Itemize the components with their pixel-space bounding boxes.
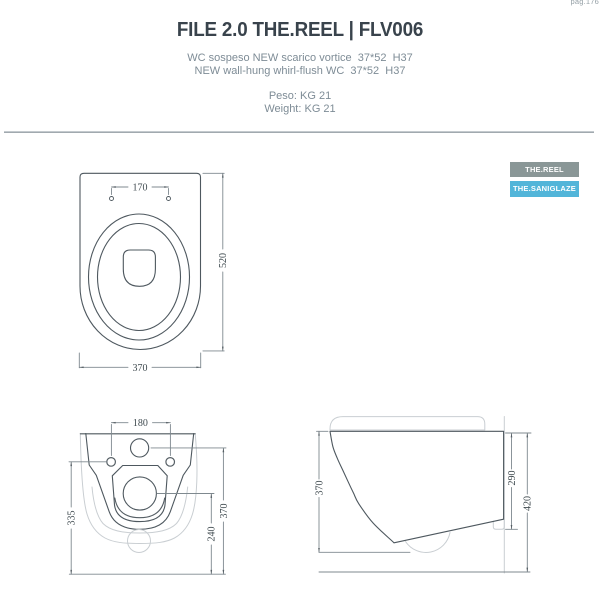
svg-text:180: 180 (133, 418, 148, 429)
svg-text:335: 335 (67, 511, 78, 526)
svg-text:370: 370 (219, 504, 230, 519)
svg-text:370: 370 (314, 481, 325, 496)
svg-text:290: 290 (507, 471, 518, 486)
svg-text:370: 370 (133, 363, 148, 374)
svg-text:420: 420 (523, 496, 534, 511)
svg-text:520: 520 (218, 253, 229, 268)
svg-text:170: 170 (133, 183, 148, 194)
svg-text:240: 240 (207, 527, 218, 542)
